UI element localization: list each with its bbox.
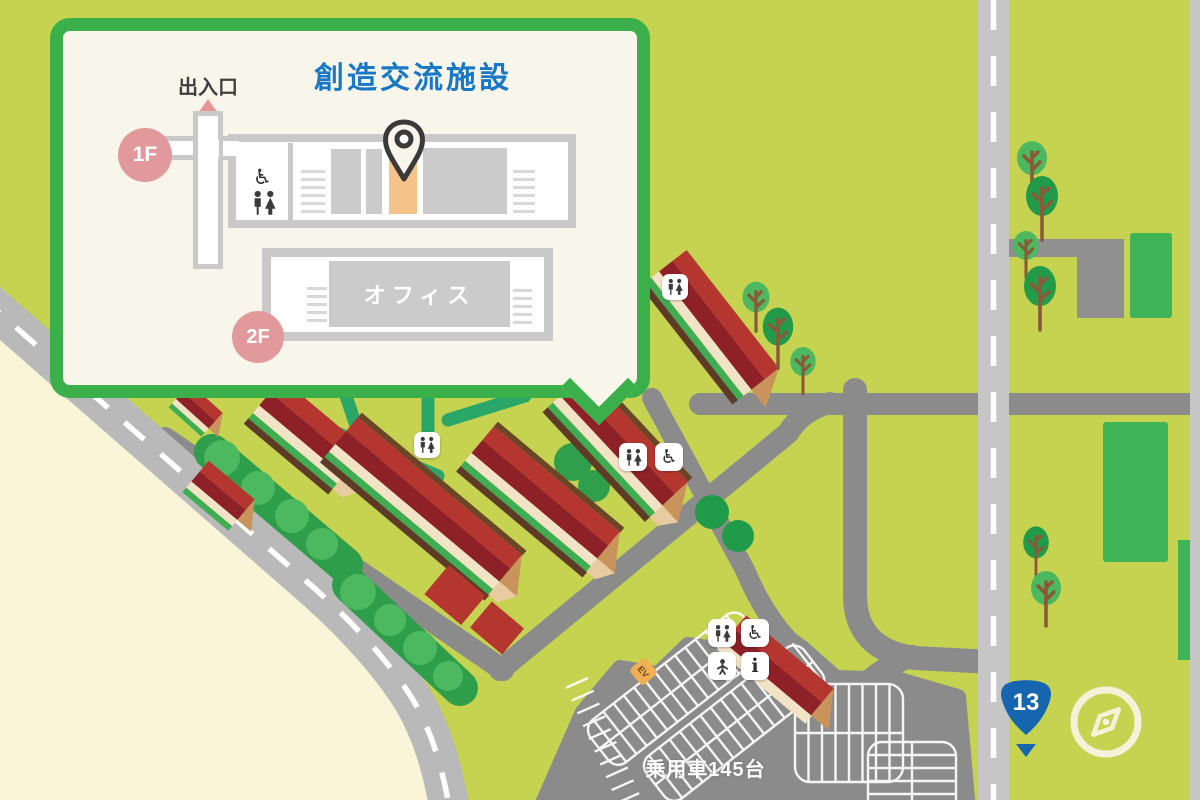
floor1-badge: 1F [118, 128, 172, 182]
location-pin-icon[interactable] [381, 119, 427, 185]
corridor-junction [223, 141, 239, 156]
restroom-man-woman-icon [417, 436, 437, 454]
restroom-marker[interactable] [619, 443, 647, 471]
stairs [513, 289, 532, 326]
restroom-man-woman-icon [665, 278, 685, 296]
baby-icon [714, 658, 731, 675]
wheelchair-icon: ♿ [660, 448, 677, 467]
stairs [307, 287, 327, 326]
floor1-corridor-entrance [193, 111, 223, 269]
stairs [301, 170, 325, 213]
parking-capacity-label: 乗用車145台 [623, 753, 788, 782]
field [1130, 233, 1172, 318]
restroom-wall [288, 143, 293, 220]
corridor-junction [198, 140, 219, 157]
office-room: オフィス [329, 261, 510, 327]
compass-icon [1062, 678, 1150, 766]
info-icon: i [751, 657, 758, 676]
ev-label: EV [636, 664, 651, 680]
route-number: 13 [998, 689, 1054, 717]
accessible-marker[interactable]: ♿ [655, 443, 683, 471]
floor1-room [331, 149, 361, 214]
map-screen: ♿ ♿ i [0, 0, 1200, 800]
restroom-marker[interactable] [662, 274, 688, 300]
accessible-marker[interactable]: ♿ [741, 619, 769, 647]
route-direction-arrow-icon [1016, 744, 1036, 757]
route-shield: 13 [998, 678, 1054, 738]
facility-marker-cluster: ♿ i [708, 619, 769, 680]
nursing-marker[interactable] [708, 652, 736, 680]
restroom-man-woman-icon [249, 190, 279, 216]
restroom-man-woman-icon [712, 624, 733, 643]
facility-popup: 創造交流施設 出入口 ♿ 1F オフィス 2F [50, 18, 650, 398]
restroom-marker[interactable] [708, 619, 736, 647]
stairs [513, 170, 535, 213]
popup-title: 創造交流施設 [193, 53, 633, 97]
field [1103, 422, 1168, 562]
wheelchair-icon: ♿ [253, 167, 272, 188]
plaza [1077, 239, 1124, 318]
restroom-marker[interactable] [414, 432, 440, 458]
floor2-badge: 2F [232, 311, 284, 363]
floor1-room [423, 148, 507, 214]
entrance-label: 出入口 [168, 71, 248, 100]
restroom-man-woman-icon [623, 448, 644, 467]
information-marker[interactable]: i [741, 652, 769, 680]
wheelchair-icon: ♿ [746, 624, 763, 643]
floor1-room [366, 149, 382, 214]
